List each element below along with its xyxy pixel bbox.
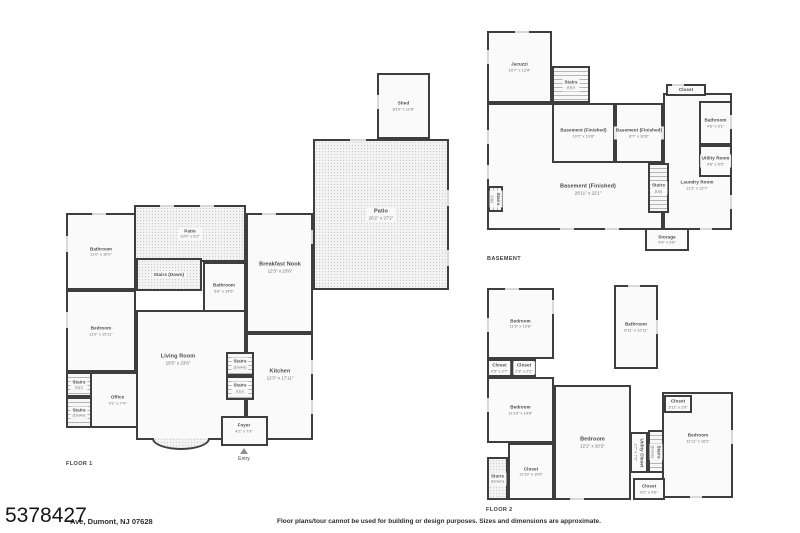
window-marker xyxy=(731,430,733,444)
mls-number: 5378427 xyxy=(5,504,87,528)
room-dimensions: (Down) xyxy=(650,445,655,458)
disclaimer-text: Floor plans/tour cannot be used for buil… xyxy=(277,518,601,525)
basement-label-stairs: Stairs(Up) xyxy=(489,190,502,207)
floor-1-label-living-room: Living Room16'5" x 23'6" xyxy=(159,353,197,368)
floor-1-label-stairs: Stairs(Down) xyxy=(231,357,248,370)
floor-2-label-stairs: Stairs(Down) xyxy=(649,443,662,460)
basement-label-laundry-room: Laundry Room11'3" x 12'7" xyxy=(679,178,716,191)
floor-2-label-closet: Closet6'2" x 4'6" xyxy=(638,482,660,495)
room-name: Foyer xyxy=(235,422,253,428)
room-dimensions: 26'11" x 22'1" xyxy=(560,191,616,197)
window-marker xyxy=(66,236,68,252)
basement-label-basement-finished: Basement (Finished)10'2" x 10'8" xyxy=(558,126,608,139)
window-marker xyxy=(730,195,732,209)
floor-2-label-bathroom: Bathroom6'11" x 12'11" xyxy=(622,320,650,333)
floor-1-bay-window xyxy=(152,438,210,450)
window-marker xyxy=(487,398,489,412)
window-marker xyxy=(487,130,489,144)
room-dimensions: 12'2" x 20'2" xyxy=(580,443,605,449)
room-name: Utility Closet xyxy=(639,438,645,467)
room-name: Stairs xyxy=(495,192,501,205)
window-marker xyxy=(560,228,574,230)
room-name: Utility Room xyxy=(702,155,730,161)
floor-1-label-stairs: Stairs(Down) xyxy=(70,406,87,419)
basement-title: BASEMENT xyxy=(487,256,521,262)
floor-1-entry-arrow-icon xyxy=(240,448,248,454)
basement-label-jacuzzi: Jacuzzi10'7" x 12'4" xyxy=(507,60,533,73)
room-dimensions: 6'11" x 12'11" xyxy=(624,327,648,332)
room-dimensions: (Up) xyxy=(233,388,246,393)
window-marker xyxy=(350,139,366,141)
floor-1-label-bedroom: Bedroom11'9" x 15'11" xyxy=(87,324,115,337)
room-name: Stairs xyxy=(72,379,85,385)
room-dimensions: 11'9" x 15'11" xyxy=(89,331,113,336)
room-name: Bathroom xyxy=(704,117,726,123)
window-marker xyxy=(487,318,489,332)
room-dimensions: 8'10" x 11'8" xyxy=(393,106,415,111)
room-name: Stairs xyxy=(233,382,246,388)
room-name: Office xyxy=(109,394,127,400)
room-name: Laundry Room xyxy=(681,179,714,185)
room-name: Basement (Finished) xyxy=(560,127,606,133)
window-marker xyxy=(447,250,449,266)
window-marker xyxy=(200,205,214,207)
window-marker xyxy=(262,213,276,215)
window-marker xyxy=(628,285,640,287)
basement-label-storage: Storage9'9" x 3'8" xyxy=(656,233,678,246)
window-marker xyxy=(515,31,529,33)
room-name: Storage xyxy=(658,234,676,240)
room-name: Closet xyxy=(668,398,687,404)
room-dimensions: (Up) xyxy=(652,188,665,193)
room-dimensions: 16'5" x 23'6" xyxy=(161,361,195,367)
room-name: Stairs xyxy=(564,79,577,85)
room-dimensions: 10'7" x 12'4" xyxy=(509,67,531,72)
window-marker xyxy=(605,228,619,230)
room-dimensions: 2'9" x 2'2" xyxy=(515,368,533,373)
room-name: Bedroom xyxy=(580,436,605,443)
room-dimensions: 11'10" x 14'8" xyxy=(509,410,533,415)
window-marker xyxy=(311,400,313,414)
basement-label-basement-finished: Basement (Finished)26'11" x 22'1" xyxy=(558,183,618,198)
room-dimensions: 12'3" x 23'6" xyxy=(259,269,301,275)
room-dimensions: (Up) xyxy=(72,385,85,390)
room-name: Patio xyxy=(369,208,394,215)
room-name: Bedroom xyxy=(686,432,710,438)
room-name: Bedroom xyxy=(510,318,532,324)
window-marker xyxy=(377,95,379,109)
room-dimensions: 11'10" x 10'6" xyxy=(519,472,543,477)
window-marker xyxy=(160,205,174,207)
floor-1-label-shed: Shed8'10" x 11'8" xyxy=(391,99,417,112)
room-name: Jacuzzi xyxy=(509,61,531,67)
room-dimensions: 11'3" x 12'7" xyxy=(681,185,714,190)
window-marker xyxy=(570,498,584,500)
window-marker xyxy=(487,50,489,64)
floor-1-label-office: Office9'1" x 7'4" xyxy=(107,393,129,406)
floor-2-label-bedroom: Bedroom11'9" x 12'8" xyxy=(508,317,534,330)
room-dimensions: 4'5" x 2'7" xyxy=(491,368,509,373)
window-marker xyxy=(552,300,554,314)
room-name: Basement (Finished) xyxy=(616,127,662,133)
floor-2-label-bedroom: Bedroom12'2" x 20'2" xyxy=(578,435,607,450)
window-marker xyxy=(311,360,313,374)
room-name: Bathroom xyxy=(213,282,235,288)
floor-2-label-stairs: Stairs(Down) xyxy=(489,472,506,485)
room-name: Bedroom xyxy=(509,404,533,410)
floor-1-label-bathroom: Bathroom11'0" x 10'0" xyxy=(88,245,114,258)
room-dimensions: 8'7" x 10'8" xyxy=(616,133,662,138)
room-name: Closet xyxy=(640,483,658,489)
room-name: Stairs xyxy=(491,473,504,479)
floor-2-label-bedroom: Bedroom11'10" x 14'8" xyxy=(507,403,535,416)
room-dimensions: 26'2" x 27'2" xyxy=(369,215,394,221)
room-name: Closet xyxy=(679,87,693,93)
room-name: Stairs xyxy=(72,407,85,413)
floor-1-label-stairs: Stairs(Up) xyxy=(231,381,248,394)
room-dimensions: (Up) xyxy=(564,85,577,90)
room-name: Stairs xyxy=(652,182,665,188)
window-marker xyxy=(92,213,106,215)
basement-label-utility-room: Utility Room4'6" x 5'3" xyxy=(700,154,732,167)
room-dimensions: 12'3" x 17'11" xyxy=(267,376,294,382)
room-dimensions: 6'2" x 4'6" xyxy=(640,489,658,494)
floor-1-title: FLOOR 1 xyxy=(66,461,93,467)
floor-1-label-foyer: Foyer4'2" x 7'9" xyxy=(233,421,255,434)
room-dimensions: 4'6" x 5'3" xyxy=(702,161,730,166)
room-dimensions: (Down) xyxy=(233,364,246,369)
room-name: Bedroom xyxy=(89,325,113,331)
room-dimensions: 11'11" x 16'2" xyxy=(686,438,710,443)
room-dimensions: 4'2" x 7'9" xyxy=(235,428,253,433)
floor-2-label-closet: Closet2'9" x 2'2" xyxy=(513,361,535,374)
room-name: Closet xyxy=(491,362,509,368)
room-name: Breakfast Nook xyxy=(259,262,301,269)
basement-label-basement-finished: Basement (Finished)8'7" x 10'8" xyxy=(614,126,664,139)
floor-2-label-utility-closet: Utility Closet2'7" x 7'9" xyxy=(632,436,645,469)
room-name: Closet xyxy=(515,362,533,368)
room-name: Stairs xyxy=(656,445,662,458)
floor-2-label-closet: Closet4'5" x 2'7" xyxy=(489,361,511,374)
room-dimensions: 10'2" x 10'8" xyxy=(560,133,606,138)
floor-2-label-closet: Closet3'11" x 2'9" xyxy=(666,397,689,410)
room-dimensions: (Down) xyxy=(72,413,85,418)
room-name: Bathroom xyxy=(624,321,648,327)
window-marker xyxy=(700,228,712,230)
window-marker xyxy=(656,320,658,334)
room-dimensions: 6'6" x 14'5" xyxy=(213,288,235,293)
room-name: Kitchen xyxy=(267,369,294,376)
room-dimensions: 9'9" x 3'8" xyxy=(658,240,676,245)
window-marker xyxy=(311,230,313,244)
window-marker xyxy=(730,115,732,129)
room-name: Stairs xyxy=(233,358,246,364)
basement-label-stairs: Stairs(Up) xyxy=(562,78,579,91)
floorplan-sheet: Patio26'2" x 27'2"Shed8'10" x 11'8"Patio… xyxy=(0,0,800,533)
room-dimensions: 4'6" x 9'1" xyxy=(704,123,726,128)
basement-label-bathroom: Bathroom4'6" x 9'1" xyxy=(702,116,728,129)
window-marker xyxy=(66,312,68,328)
room-dimensions: (Down) xyxy=(491,479,504,484)
basement-label-stairs: Stairs(Up) xyxy=(650,181,667,194)
room-name: Living Room xyxy=(161,354,195,361)
floor-2-title: FLOOR 2 xyxy=(486,507,513,513)
window-marker xyxy=(505,288,519,290)
floor-1-label-breakfast-nook: Breakfast Nook12'3" x 23'6" xyxy=(257,261,303,276)
room-name: Basement (Finished) xyxy=(560,184,616,191)
floor-1-label-stairs-down: Stairs (Down) xyxy=(152,271,186,279)
basement-label-closet: Closet xyxy=(677,86,695,94)
room-dimensions: 9'1" x 7'4" xyxy=(109,400,127,405)
floor-2-label-bedroom: Bedroom11'11" x 16'2" xyxy=(684,431,712,444)
floor-1-label-patio: Patio19'0" x 6'2" xyxy=(178,227,202,240)
room-dimensions: 3'11" x 2'9" xyxy=(668,404,687,409)
room-name: Stairs (Down) xyxy=(154,272,184,278)
floor-1-label-kitchen: Kitchen12'3" x 17'11" xyxy=(265,368,296,383)
floor-1-label-stairs: Stairs(Up) xyxy=(70,378,87,391)
room-dimensions: 11'0" x 10'0" xyxy=(90,252,112,257)
window-marker xyxy=(487,165,489,179)
room-dimensions: 19'0" x 6'2" xyxy=(180,234,200,239)
floor-2-label-closet: Closet11'10" x 10'6" xyxy=(517,465,545,478)
floor-1-label-bathroom: Bathroom6'6" x 14'5" xyxy=(211,281,237,294)
window-marker xyxy=(447,190,449,206)
room-dimensions: 11'9" x 12'8" xyxy=(510,324,532,329)
floor-1-label-patio: Patio26'2" x 27'2" xyxy=(367,207,396,222)
room-name: Bathroom xyxy=(90,246,112,252)
floor-1-entry-label: Entry xyxy=(238,456,250,462)
window-marker xyxy=(690,496,702,498)
